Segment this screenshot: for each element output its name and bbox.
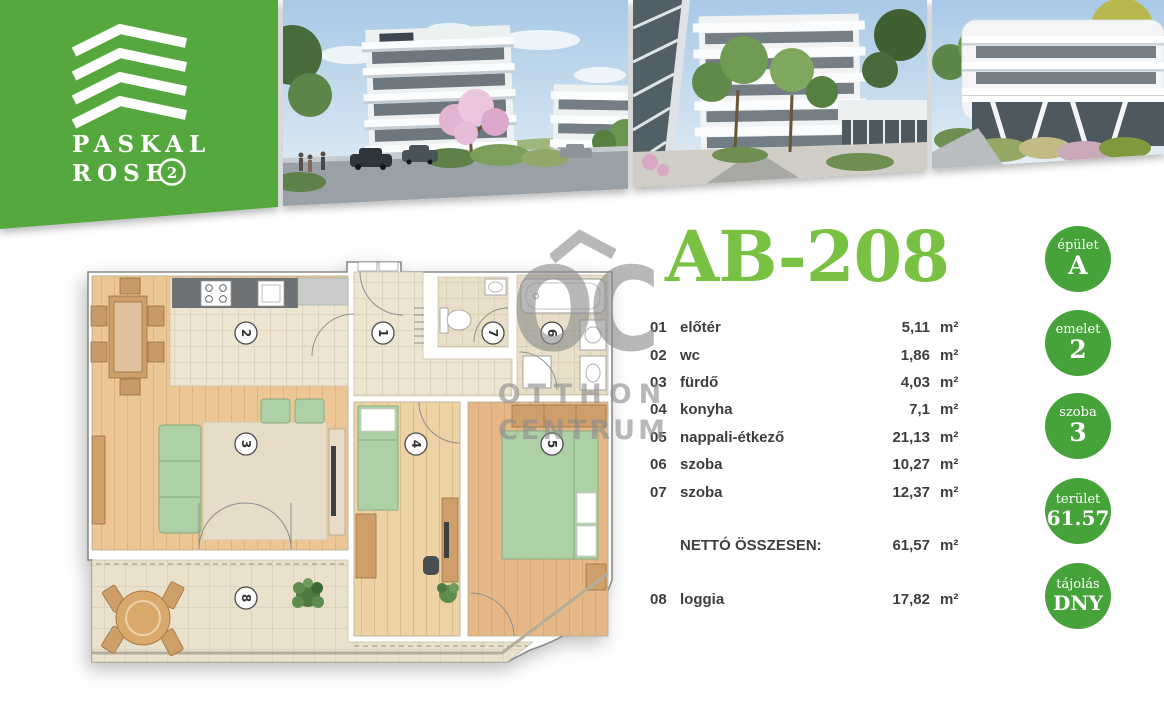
room-bedroom-2 <box>468 402 608 636</box>
brand-name-line2: ROSE <box>72 160 169 187</box>
badge-value: 3 <box>1069 420 1086 446</box>
room-area: 12,37 <box>866 484 930 501</box>
room-number-2: 2 <box>235 322 257 344</box>
area-unit: m² <box>930 401 976 418</box>
net-total-row: NETTÓ ÖSSZESEN: 61,57 m² <box>650 532 976 559</box>
room-name: előtér <box>680 319 866 336</box>
svg-text:8: 8 <box>239 594 253 602</box>
room-number-4: 4 <box>405 433 427 455</box>
brand-logo-block: PASKAL ROSE 2 <box>0 0 278 229</box>
loggia-row: 08 loggia 17,82 m² <box>650 586 976 613</box>
room-number-1: 1 <box>372 322 394 344</box>
top-banner: PASKAL ROSE 2 <box>0 0 1164 245</box>
room-area: 21,13 <box>866 429 930 446</box>
badge-area: terület 61.57 <box>1045 478 1111 544</box>
svg-text:5: 5 <box>545 440 559 448</box>
room-number: 03 <box>650 374 680 391</box>
room-living <box>91 276 348 550</box>
area-unit: m² <box>930 347 976 364</box>
room-number-7: 7 <box>482 322 504 344</box>
area-unit: m² <box>930 591 976 608</box>
area-unit: m² <box>930 319 976 336</box>
badge-value: A <box>1068 253 1087 279</box>
table-row: 07 szoba 12,37 m² <box>650 478 976 505</box>
svg-text:6: 6 <box>545 329 559 337</box>
room-number: 04 <box>650 401 680 418</box>
room-name: szoba <box>680 456 866 473</box>
room-name: loggia <box>680 591 866 608</box>
floor-plan: 1 2 3 4 5 6 7 8 <box>62 250 662 690</box>
room-name: wc <box>680 347 866 364</box>
bath-sink-icon <box>580 356 606 390</box>
svg-text:3: 3 <box>239 440 253 448</box>
kitchen-sink-icon <box>258 281 284 306</box>
building-photo-3 <box>932 0 1164 180</box>
table-row: 05 nappali-étkező 21,13 m² <box>650 424 976 451</box>
wc-sink-icon <box>485 279 506 295</box>
table-row: 01 előtér 5,11 m² <box>650 314 976 341</box>
badge-value: DNY <box>1053 593 1103 614</box>
room-area: 17,82 <box>866 591 930 608</box>
room-number-8: 8 <box>235 587 257 609</box>
building-photo-1 <box>262 0 653 210</box>
area-unit: m² <box>930 537 976 554</box>
badge-floor: emelet 2 <box>1045 310 1111 376</box>
table-row: 04 konyha 7,1 m² <box>650 396 976 423</box>
badge-value: 2 <box>1069 337 1086 363</box>
room-name: konyha <box>680 401 866 418</box>
single-bed-icon <box>358 406 398 510</box>
room-name: nappali-étkező <box>680 429 866 446</box>
table-row: 06 szoba 10,27 m² <box>650 451 976 478</box>
room-number: 06 <box>650 456 680 473</box>
svg-text:4: 4 <box>409 440 423 448</box>
badge-rooms: szoba 3 <box>1045 393 1111 459</box>
tv-unit-icon <box>329 429 345 535</box>
wardrobe-icon <box>512 405 606 427</box>
table-row: 03 fürdő 4,03 m² <box>650 369 976 396</box>
svg-text:2: 2 <box>239 329 253 337</box>
room-name: szoba <box>680 484 866 501</box>
plant-icon <box>292 578 324 608</box>
cooktop-icon <box>201 281 231 306</box>
room-area: 10,27 <box>866 456 930 473</box>
badge-value: 61.57 <box>1047 508 1110 529</box>
room-number-5: 5 <box>541 433 563 455</box>
sofa-icon <box>159 425 201 533</box>
room-area: 1,86 <box>866 347 930 364</box>
room-number: 02 <box>650 347 680 364</box>
room-number-3: 3 <box>235 433 257 455</box>
datasheet-page: PASKAL ROSE 2 <box>0 0 1164 702</box>
washer-icon <box>580 320 606 350</box>
room-area: 5,11 <box>866 319 930 336</box>
building-photo-2 <box>633 0 927 200</box>
room-area: 7,1 <box>866 401 930 418</box>
room-number-6: 6 <box>541 322 563 344</box>
room-number: 08 <box>650 591 680 608</box>
brand-badge-number: 2 <box>167 164 177 182</box>
svg-text:7: 7 <box>486 329 500 337</box>
room-area: 4,03 <box>866 374 930 391</box>
room-number: 07 <box>650 484 680 501</box>
room-number: 05 <box>650 429 680 446</box>
rooms-table: 01 előtér 5,11 m² 02 wc 1,86 m² 03 fürdő… <box>650 314 976 506</box>
badge-building: épület A <box>1045 226 1111 292</box>
area-unit: m² <box>930 429 976 446</box>
svg-text:1: 1 <box>376 329 390 337</box>
table-row: 02 wc 1,86 m² <box>650 341 976 368</box>
bathtub-icon <box>521 279 605 313</box>
area-unit: m² <box>930 456 976 473</box>
area-unit: m² <box>930 484 976 501</box>
room-name: fürdő <box>680 374 866 391</box>
unit-title: AB-208 <box>640 222 974 292</box>
net-total-label: NETTÓ ÖSSZESEN: <box>680 537 866 554</box>
area-unit: m² <box>930 374 976 391</box>
brand-name-line1: PASKAL <box>72 131 211 158</box>
net-total-area: 61,57 <box>866 537 930 554</box>
badge-orientation: tájolás DNY <box>1045 563 1111 629</box>
room-number: 01 <box>650 319 680 336</box>
